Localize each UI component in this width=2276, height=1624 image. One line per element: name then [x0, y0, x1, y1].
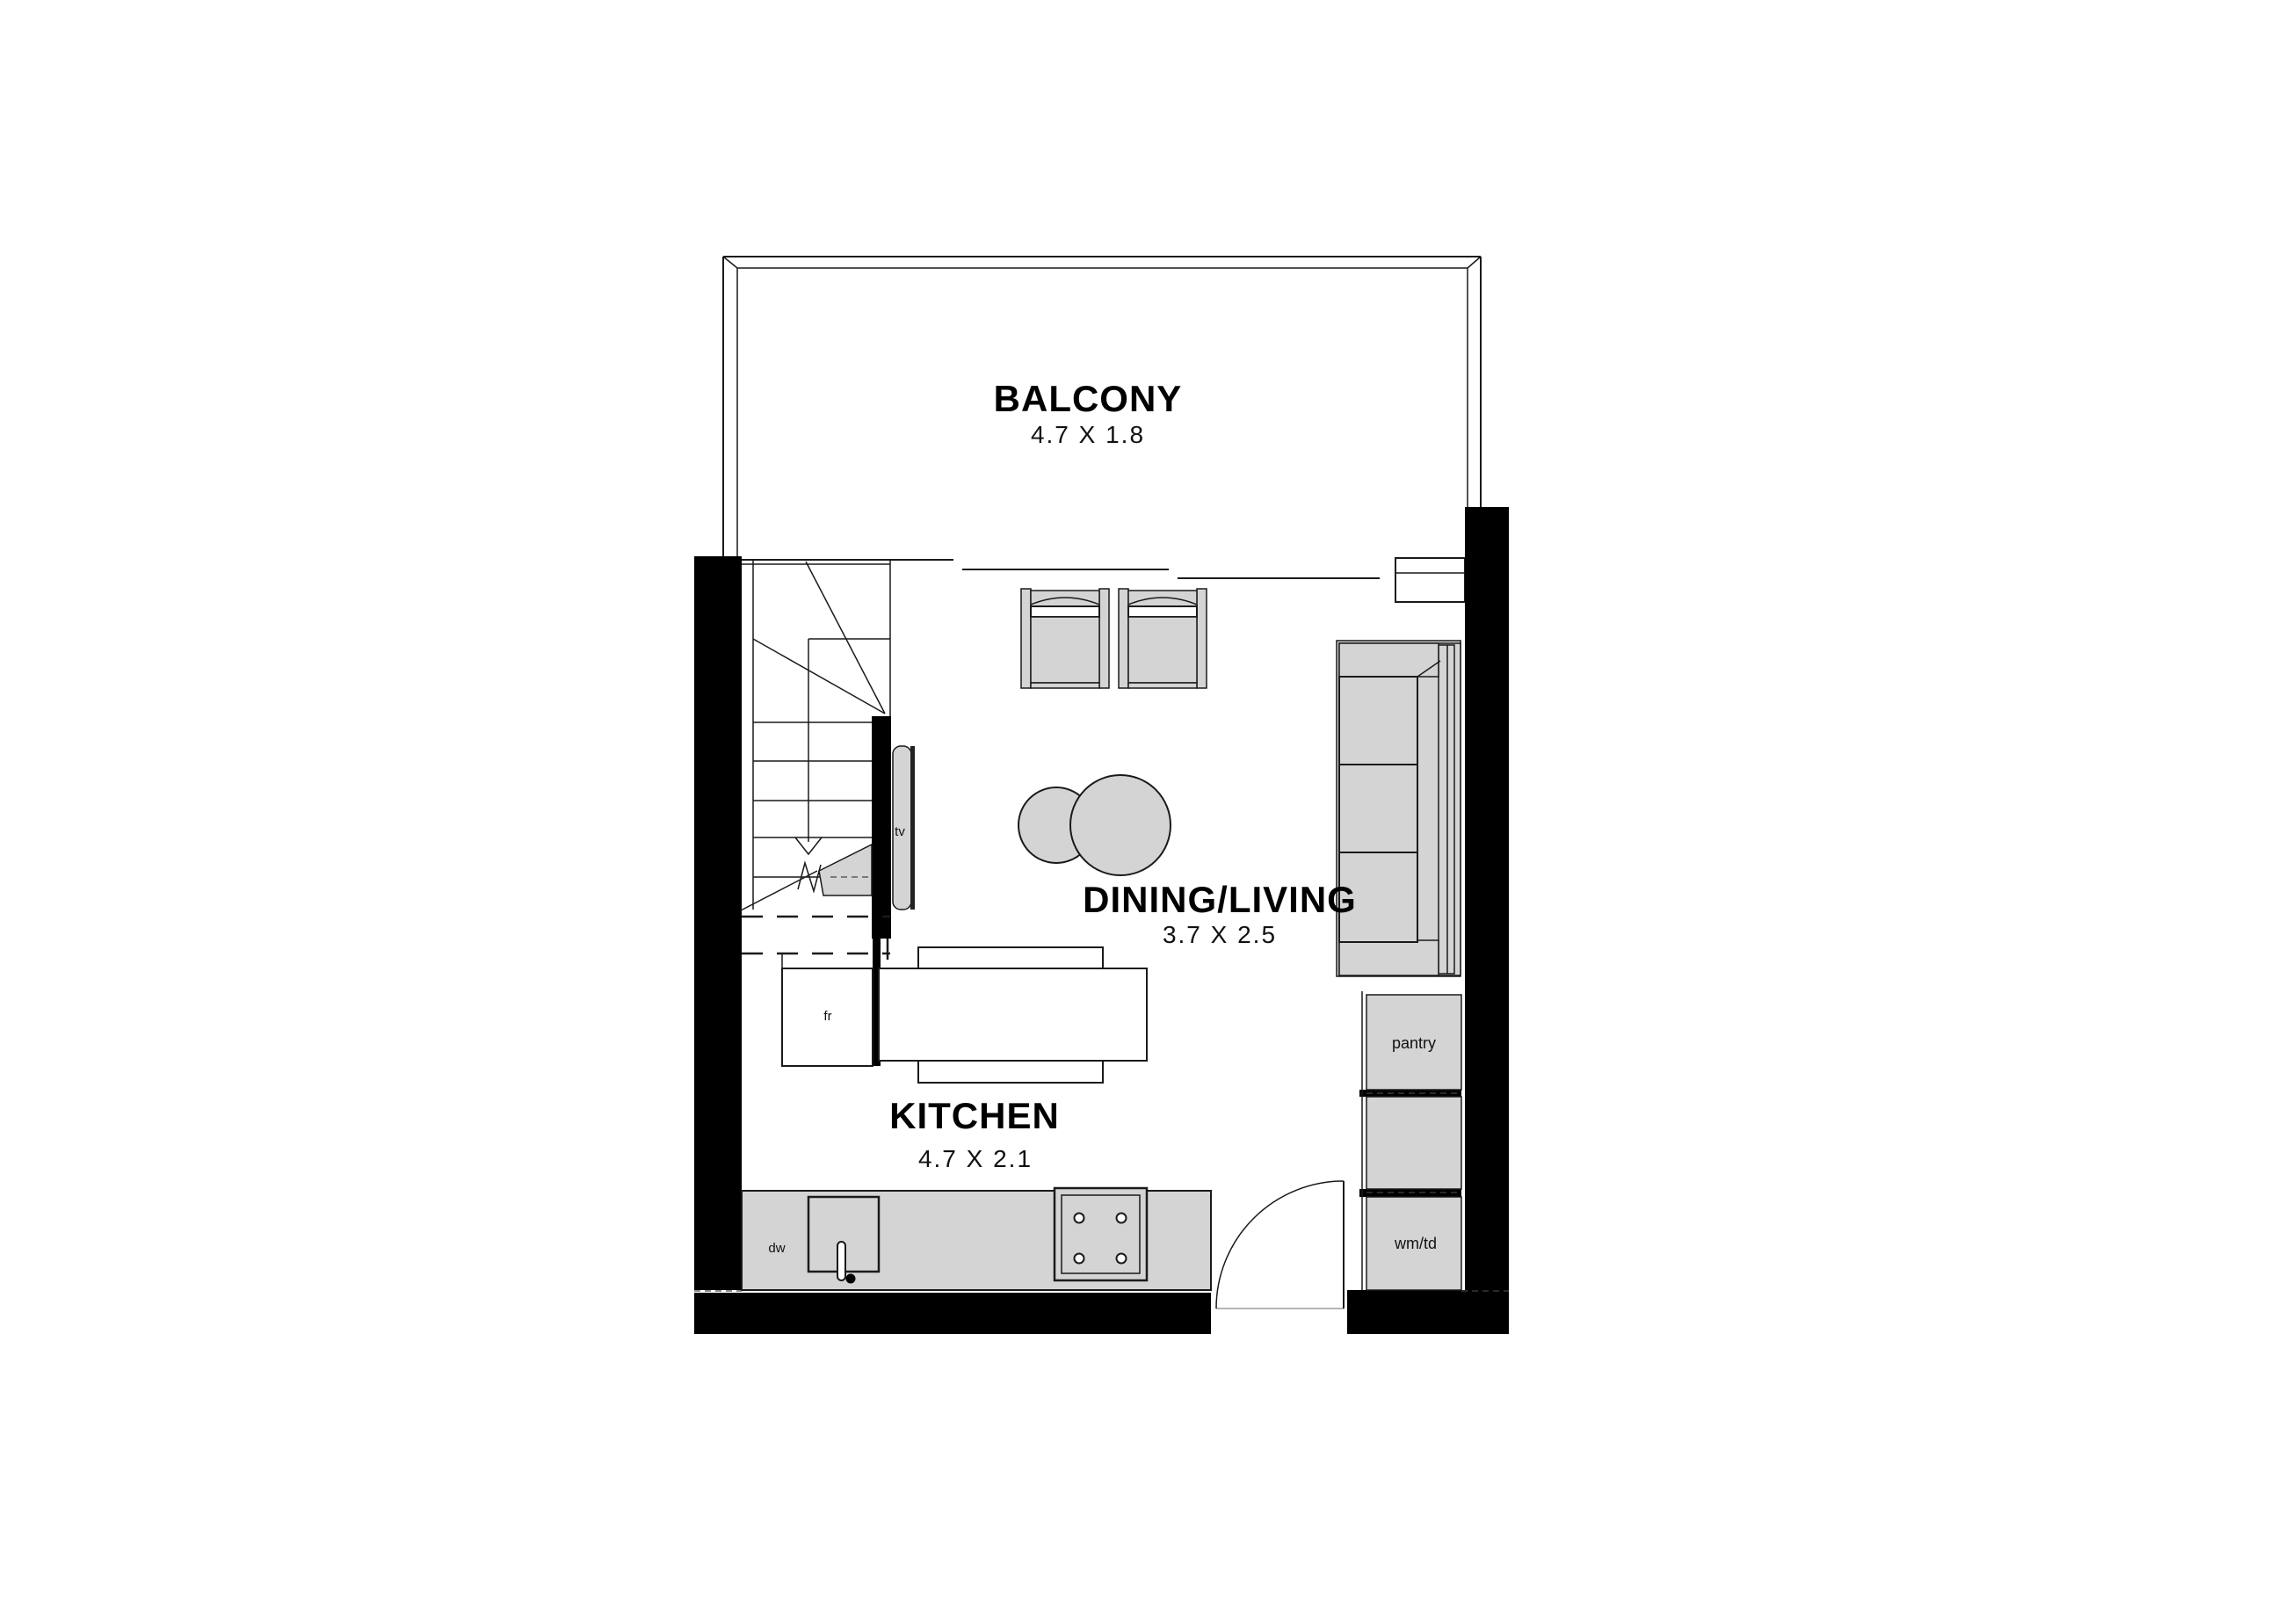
- tv-screen: [910, 746, 915, 910]
- dining-table: [879, 968, 1147, 1061]
- stair-lower-flight: [819, 845, 872, 895]
- sink: [808, 1197, 879, 1284]
- washer-dryer-label: wm/td: [1394, 1235, 1437, 1252]
- dining-living-dims: 3.7 X 2.5: [1163, 921, 1277, 948]
- burner: [1075, 1214, 1084, 1223]
- sofa-back: [1439, 645, 1454, 974]
- sofa-cushion: [1339, 765, 1417, 852]
- kitchen-counter: [742, 1188, 1211, 1290]
- bench-bottom: [918, 1061, 1103, 1083]
- sofa: [1337, 641, 1461, 976]
- tv-label: tv: [895, 824, 905, 839]
- floor-plan-page: BALCONY 4.7 X 1.8 DINING/LIVING 3.7 X 2.…: [0, 0, 2276, 1624]
- dining-living-label: DINING/LIVING: [1083, 879, 1357, 920]
- kitchen-dims: 4.7 X 2.1: [918, 1145, 1033, 1172]
- armchair-2: [1119, 589, 1207, 688]
- entry-door: [1216, 1181, 1344, 1309]
- sofa-cushion: [1339, 677, 1417, 765]
- wall-right: [1465, 507, 1509, 1334]
- pantry-label: pantry: [1392, 1034, 1436, 1052]
- stair-break-line: [798, 863, 821, 891]
- kitchen-label: KITCHEN: [889, 1095, 1060, 1136]
- faucet-base: [846, 1274, 856, 1284]
- dining-table-group: [879, 947, 1147, 1083]
- sofa-arm-bottom: [1339, 940, 1439, 975]
- wall-bottom-left: [694, 1293, 1211, 1334]
- storage-box: [1366, 1097, 1461, 1189]
- balcony-label: BALCONY: [994, 378, 1183, 419]
- burner: [1117, 1254, 1127, 1264]
- armchair-1: [1021, 589, 1109, 688]
- burner: [1117, 1214, 1127, 1223]
- fridge-label: fr: [823, 1009, 831, 1024]
- faucet: [837, 1242, 845, 1280]
- door-swing-arc: [1216, 1181, 1344, 1309]
- bench-top: [918, 947, 1103, 968]
- wall-tv-stub: [872, 716, 891, 939]
- burner: [1075, 1254, 1084, 1264]
- wall-left: [694, 556, 742, 1290]
- poufs: [1018, 775, 1171, 875]
- floor-plan-drawing: BALCONY 4.7 X 1.8 DINING/LIVING 3.7 X 2.…: [0, 0, 2276, 1624]
- balcony-cabinet: [1395, 558, 1465, 602]
- stove: [1055, 1188, 1147, 1280]
- dishwasher-label: dw: [768, 1241, 785, 1256]
- pouf-large: [1070, 775, 1171, 875]
- balcony-dims: 4.7 X 1.8: [1031, 421, 1145, 448]
